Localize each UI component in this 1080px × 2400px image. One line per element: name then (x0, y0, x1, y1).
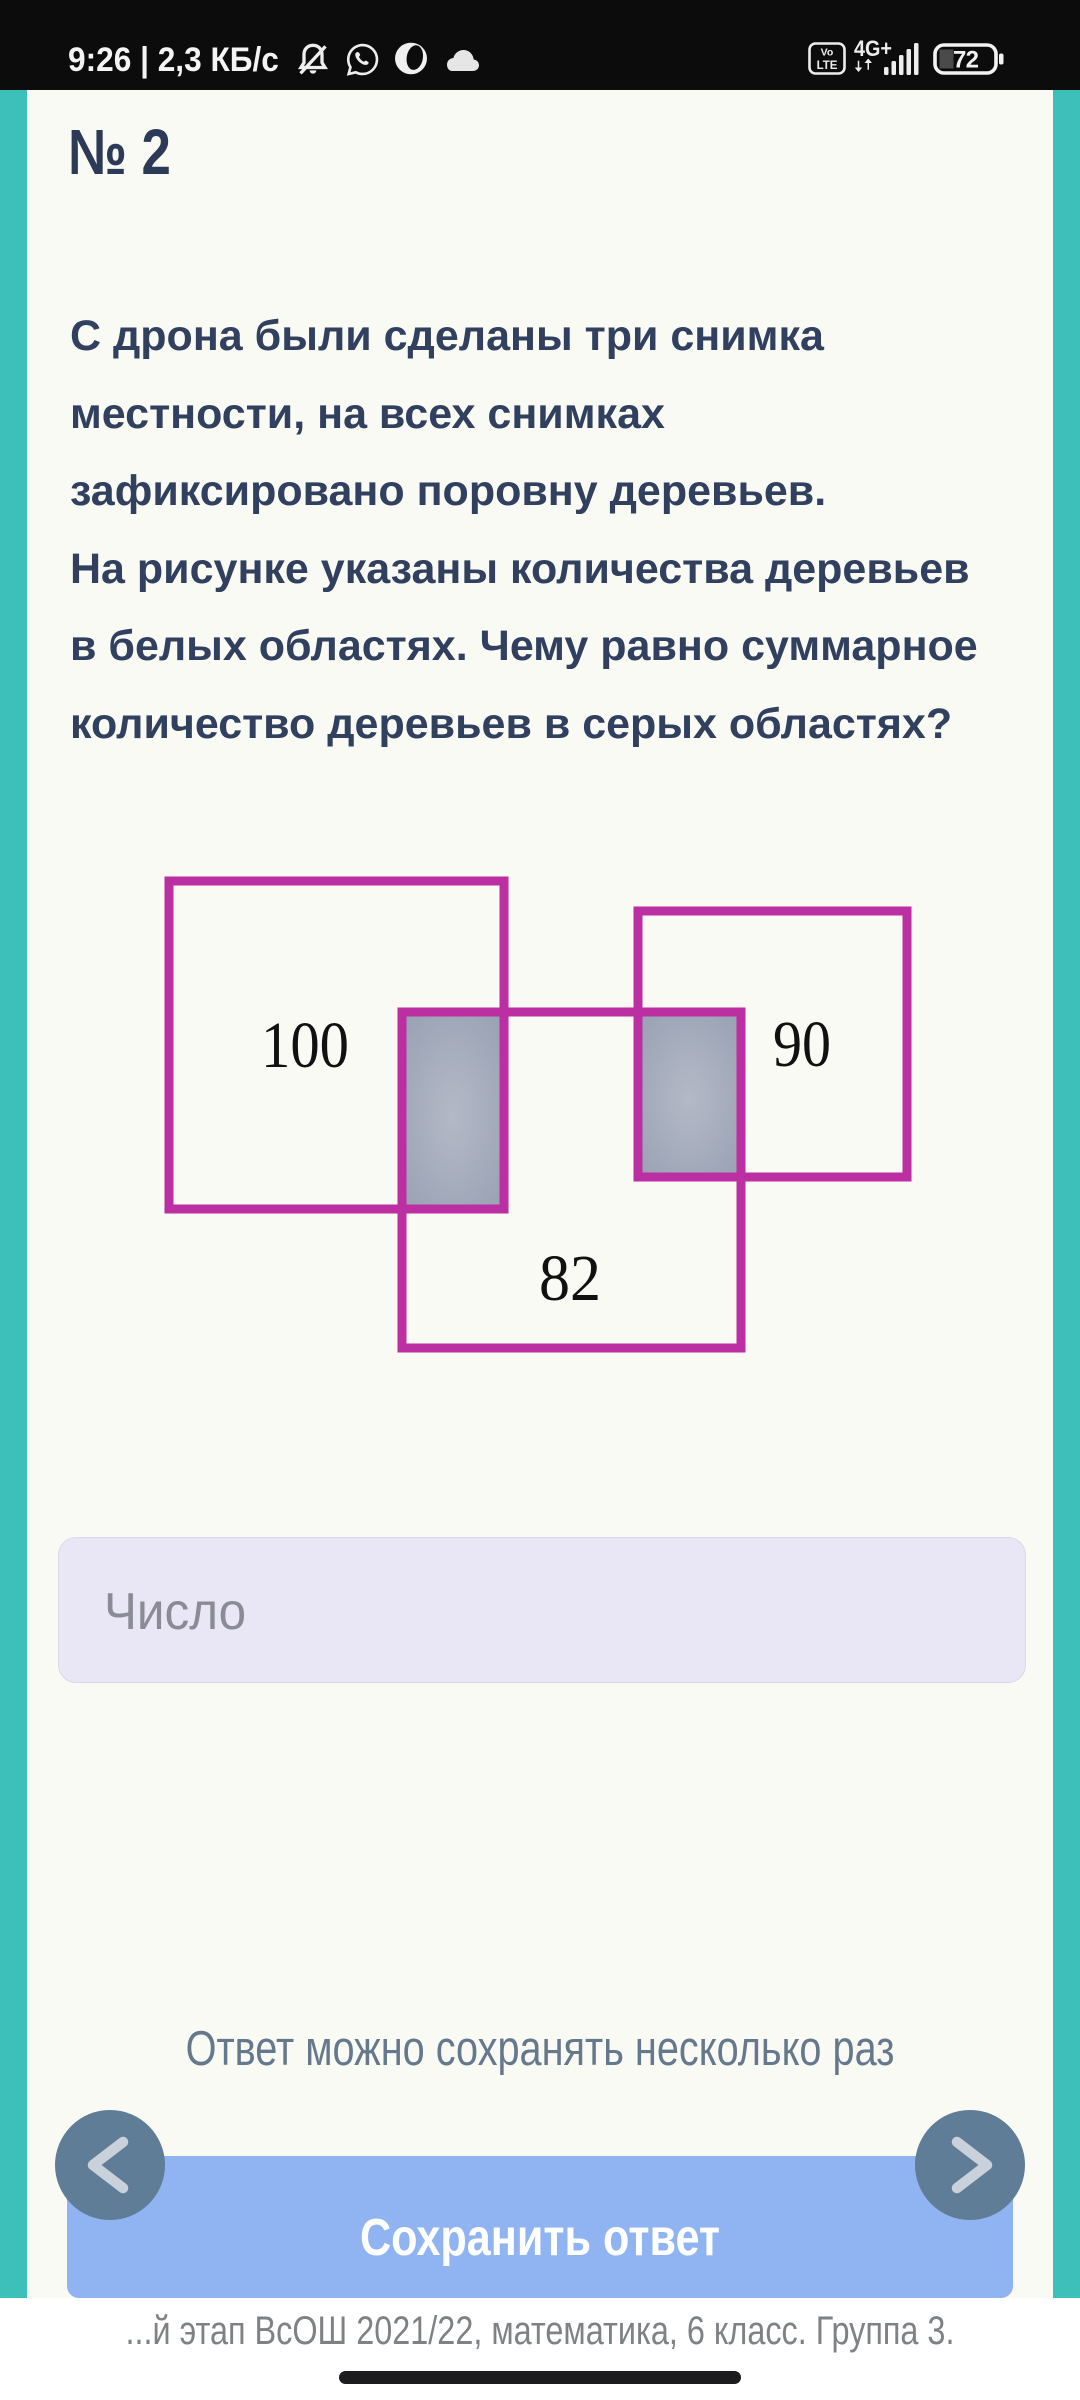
svg-text:82: 82 (539, 1242, 601, 1315)
svg-text:LTE: LTE (817, 60, 838, 72)
svg-text:90: 90 (773, 1008, 831, 1081)
svg-text:100: 100 (261, 1009, 349, 1082)
svg-text:72: 72 (953, 47, 979, 74)
svg-text:Vo: Vo (821, 47, 834, 59)
